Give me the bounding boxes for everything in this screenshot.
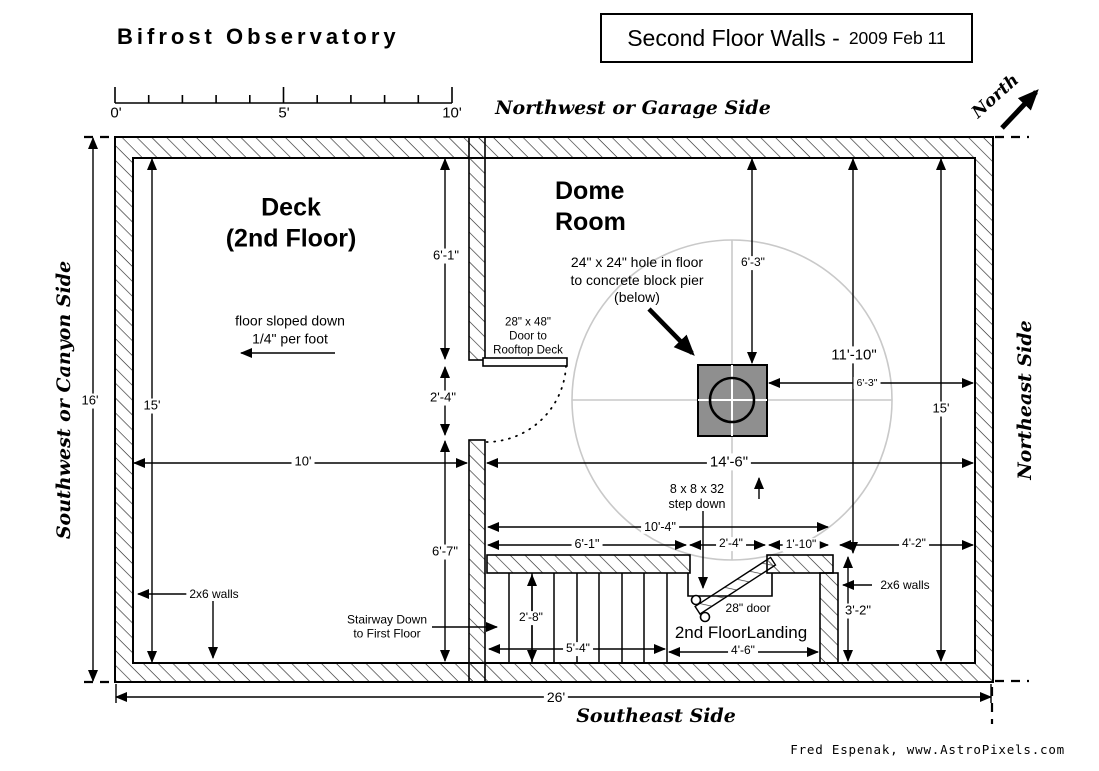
stairway-note-line1: Stairway Down xyxy=(347,613,427,627)
credit-line: Fred Espenak, www.AstroPixels.com xyxy=(790,742,1065,757)
walls-label-left: 2x6 walls xyxy=(186,587,241,601)
drawing-title: Second Floor Walls - xyxy=(627,25,840,52)
dim-2-4-door: 2'-4" xyxy=(427,391,459,406)
scale-tick-10: 10' xyxy=(442,104,462,121)
dim-2-8: 2'-8" xyxy=(516,611,546,625)
concrete-pier xyxy=(698,365,767,436)
floor-plan-page: Bifrost Observatory Second Floor Walls -… xyxy=(0,0,1099,771)
door28-label: 28" door xyxy=(726,601,771,615)
dim-26ft: 26' xyxy=(544,689,568,705)
rooftop-door-line2: Door to xyxy=(493,330,563,344)
pier-hole-note: 24" x 24" hole in floor to concrete bloc… xyxy=(570,254,703,307)
dim-6-1-vert: 6'-1" xyxy=(430,249,462,264)
dim-2-4-horiz: 2'-4" xyxy=(716,537,746,551)
scale-tick-0: 0' xyxy=(110,104,121,121)
landing-label: 2nd FloorLanding xyxy=(675,623,807,643)
dim-4-6: 4'-6" xyxy=(728,644,758,658)
dim-14-6: 14'-6" xyxy=(707,453,751,470)
side-label-southeast: Southeast Side xyxy=(576,706,736,728)
stairway-note: Stairway Down to First Floor xyxy=(347,613,427,642)
deck-room-line1: Deck xyxy=(226,193,357,224)
dim-11-10: 11'-10" xyxy=(828,346,879,363)
deck-room-label: Deck (2nd Floor) xyxy=(226,193,357,254)
dim-15ft-right: 15' xyxy=(930,402,953,417)
drawing-date: 2009 Feb 11 xyxy=(849,28,946,49)
interior-wall-upper xyxy=(469,137,485,360)
slope-note-line1: floor sloped down xyxy=(235,313,345,331)
stairway-note-line2: to First Floor xyxy=(347,627,427,641)
dim-16ft: 16' xyxy=(79,394,102,409)
rooftop-door-leaf xyxy=(483,358,567,366)
slope-note-line2: 1/4" per foot xyxy=(235,330,345,348)
landing-back-wall xyxy=(767,555,833,573)
step-down-note: 8 x 8 x 32 step down xyxy=(669,482,726,512)
dim-10-4: 10'-4" xyxy=(641,520,679,534)
dim-3-2: 3'-2" xyxy=(842,604,874,619)
dim-5-4: 5'-4" xyxy=(563,642,593,656)
dim-6-1-horiz: 6'-1" xyxy=(572,537,603,551)
side-label-northeast: Northeast Side xyxy=(1015,320,1037,479)
interior-wall-lower xyxy=(469,440,485,682)
rooftop-door-line3: Rooftop Deck xyxy=(493,344,563,358)
scale-bar xyxy=(115,87,452,103)
step-down-line2: step down xyxy=(669,497,726,512)
dim-4-2: 4'-2" xyxy=(899,537,929,551)
deck-room-line2: (2nd Floor) xyxy=(226,223,357,254)
dome-room-label: Dome Room xyxy=(555,176,626,237)
pier-hole-line1: 24" x 24" hole in floor xyxy=(570,254,703,272)
rooftop-door-note: 28" x 48" Door to Rooftop Deck xyxy=(493,316,563,357)
rooftop-door-line1: 28" x 48" xyxy=(493,316,563,330)
step-down-line1: 8 x 8 x 32 xyxy=(669,482,726,497)
dim-6-3-vert: 6'-3" xyxy=(738,256,768,270)
dome-room-line1: Dome xyxy=(555,176,626,207)
dome-room-line2: Room xyxy=(555,207,626,238)
scale-tick-5: 5' xyxy=(278,104,289,121)
dim-6-3-horiz: 6'-3" xyxy=(854,377,881,389)
stair-top-wall xyxy=(487,555,690,573)
dim-15ft-left: 15' xyxy=(141,399,164,414)
page-title: Bifrost Observatory xyxy=(117,24,400,50)
drawing-title-box: Second Floor Walls - 2009 Feb 11 xyxy=(600,13,973,63)
dim-6-7: 6'-7" xyxy=(429,545,461,560)
dim-1-10: 1'-10" xyxy=(783,538,820,552)
side-label-southwest: Southwest or Canyon Side xyxy=(54,261,76,539)
dim-10ft: 10' xyxy=(292,455,315,470)
walls-label-right: 2x6 walls xyxy=(880,578,929,592)
pier-hole-line2: to concrete block pier xyxy=(570,271,703,289)
landing-right-wall xyxy=(820,573,838,663)
slope-note: floor sloped down 1/4" per foot xyxy=(235,313,345,348)
side-label-northwest: Northwest or Garage Side xyxy=(495,98,771,120)
pier-hole-line3: (below) xyxy=(570,289,703,307)
